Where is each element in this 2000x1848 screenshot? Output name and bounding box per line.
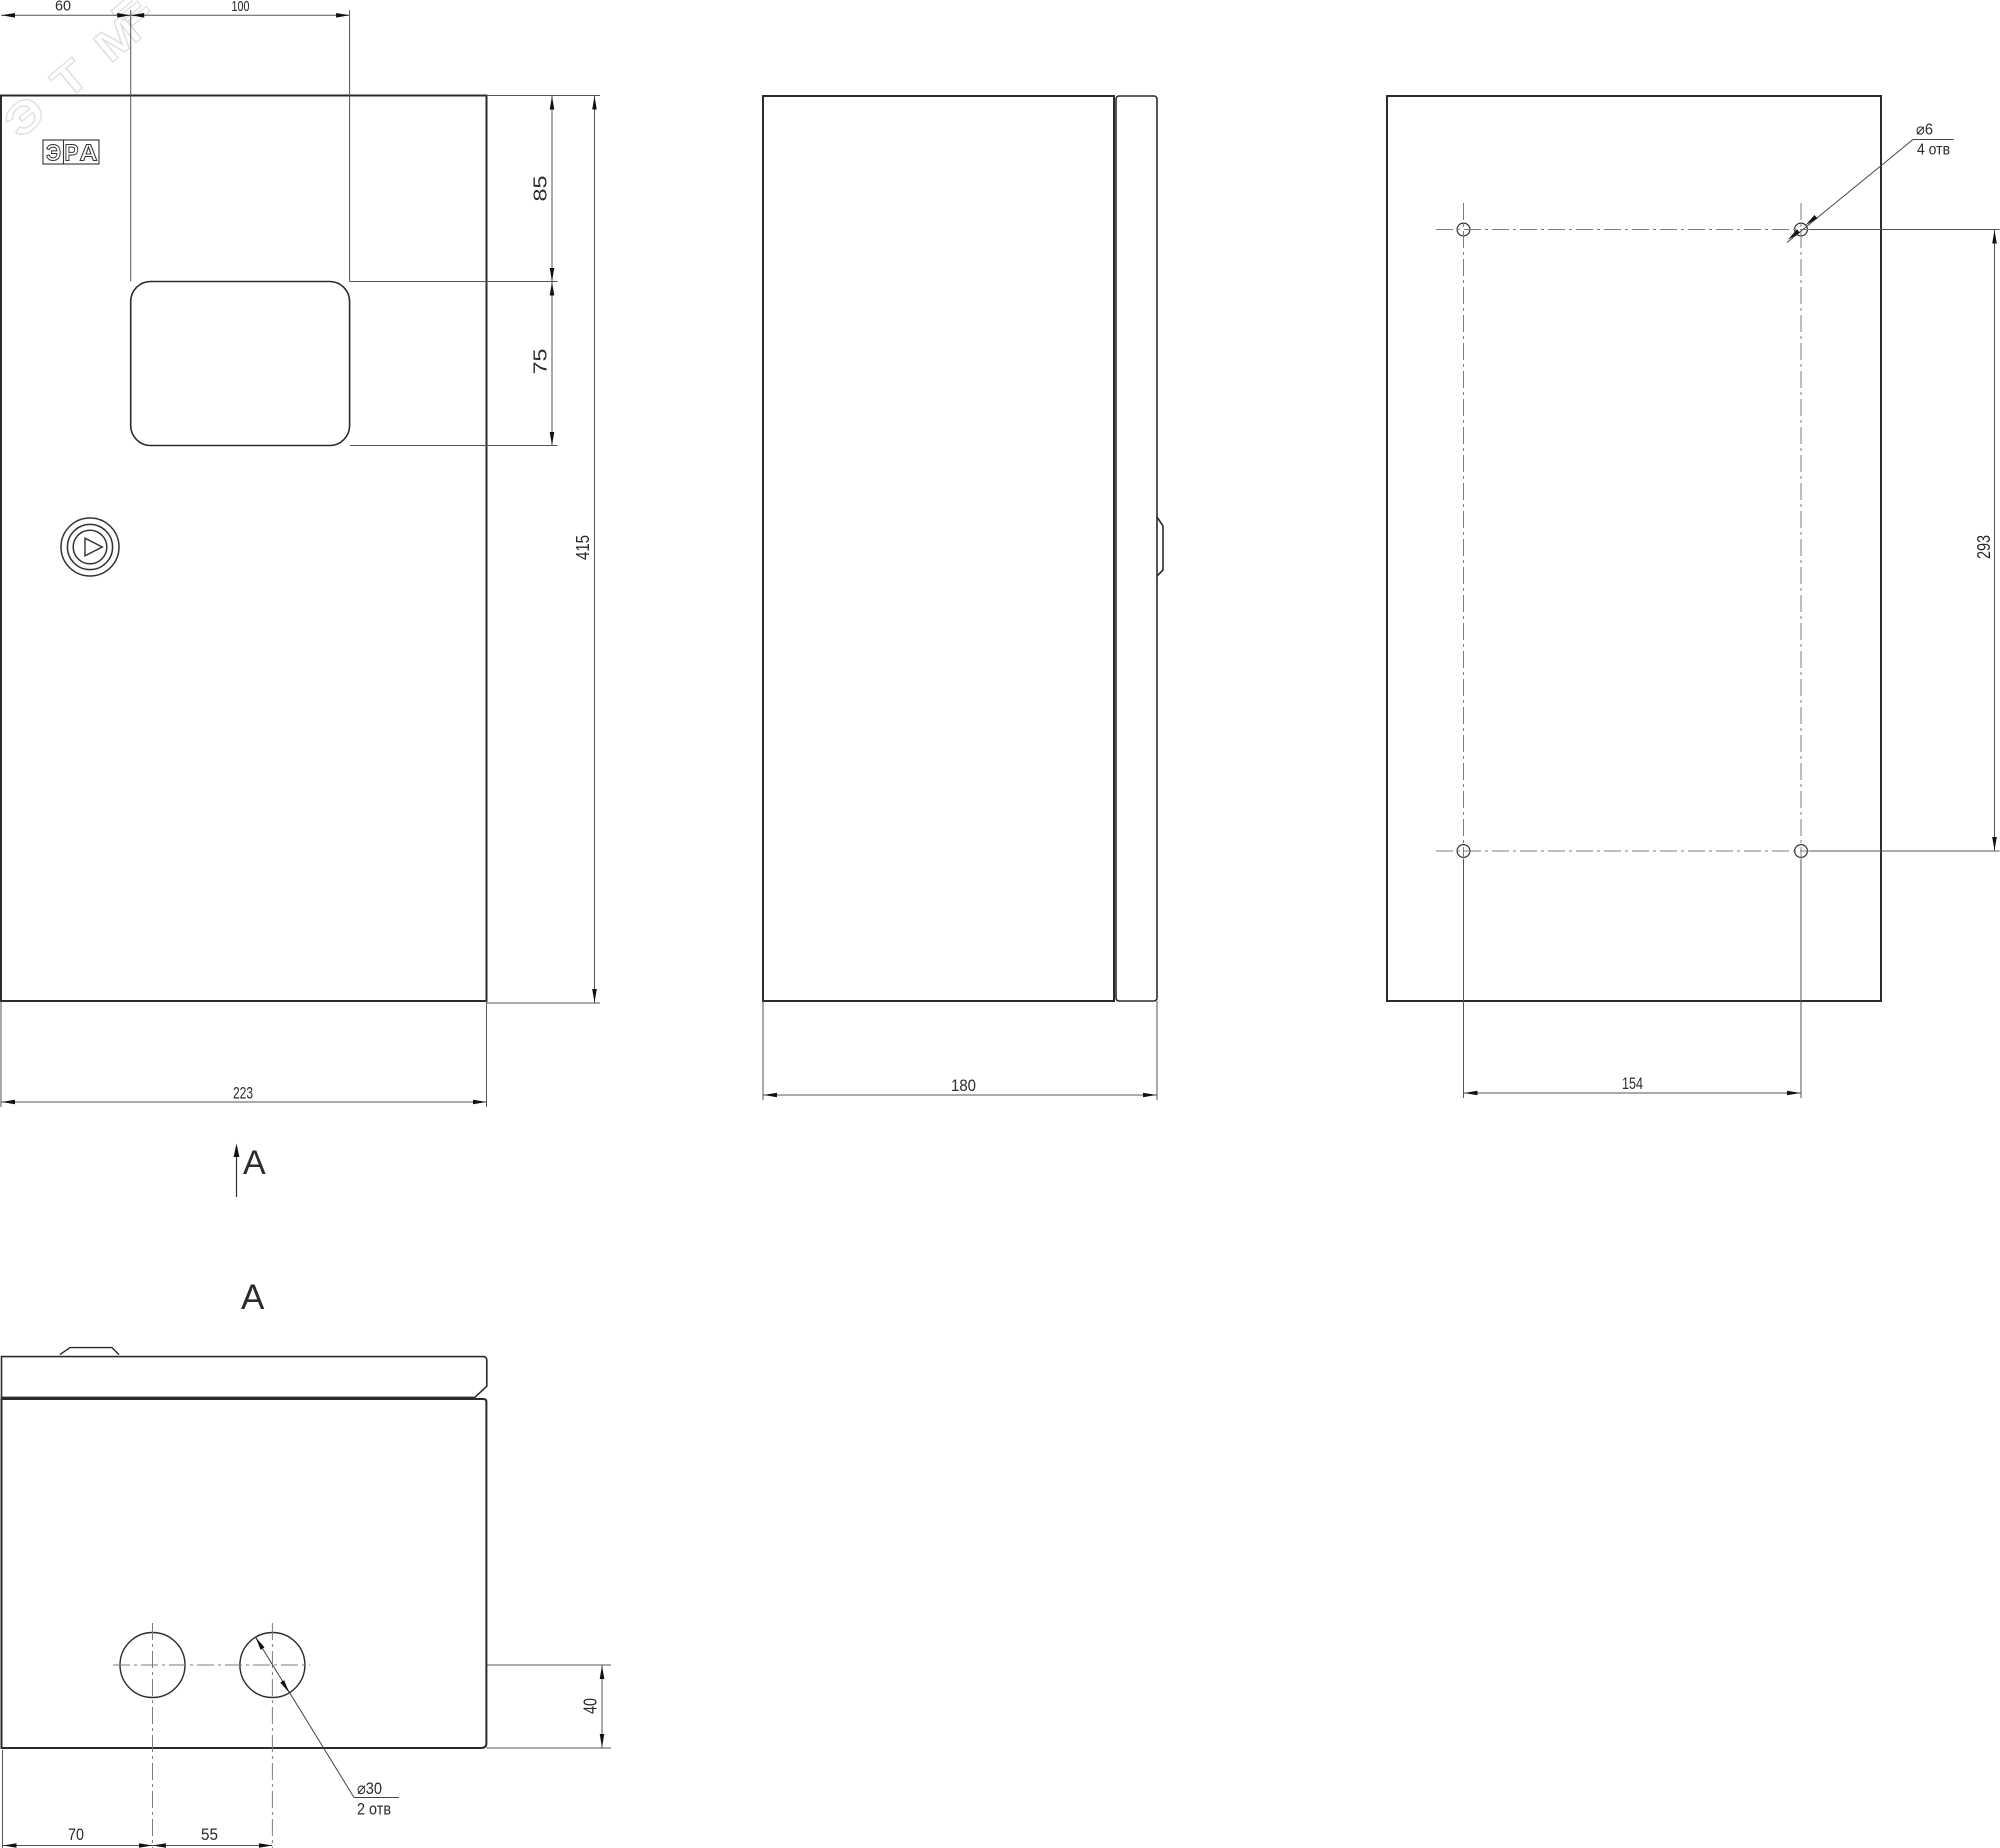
svg-text:154: 154 <box>1622 1074 1643 1093</box>
svg-text:223: 223 <box>233 1084 253 1103</box>
svg-text:60: 60 <box>55 0 71 15</box>
svg-text:85: 85 <box>531 176 551 202</box>
svg-text:100: 100 <box>232 0 250 15</box>
svg-text:A: A <box>243 1144 266 1182</box>
svg-text:75: 75 <box>531 349 551 375</box>
svg-text:180: 180 <box>951 1076 976 1095</box>
svg-text:⌀30: ⌀30 <box>357 1779 382 1798</box>
svg-text:2 отв: 2 отв <box>357 1800 391 1819</box>
svg-text:Э: Э <box>46 140 61 166</box>
svg-text:55: 55 <box>201 1825 218 1844</box>
svg-text:415: 415 <box>573 535 593 560</box>
svg-text:Р: Р <box>65 140 79 166</box>
svg-text:A: A <box>241 1278 265 1317</box>
svg-text:4 отв: 4 отв <box>1917 142 1950 159</box>
svg-text:А: А <box>80 140 98 166</box>
svg-text:⌀6: ⌀6 <box>1916 122 1933 139</box>
svg-text:40: 40 <box>581 1698 601 1714</box>
svg-text:70: 70 <box>68 1825 84 1844</box>
svg-text:293: 293 <box>1974 535 1994 559</box>
